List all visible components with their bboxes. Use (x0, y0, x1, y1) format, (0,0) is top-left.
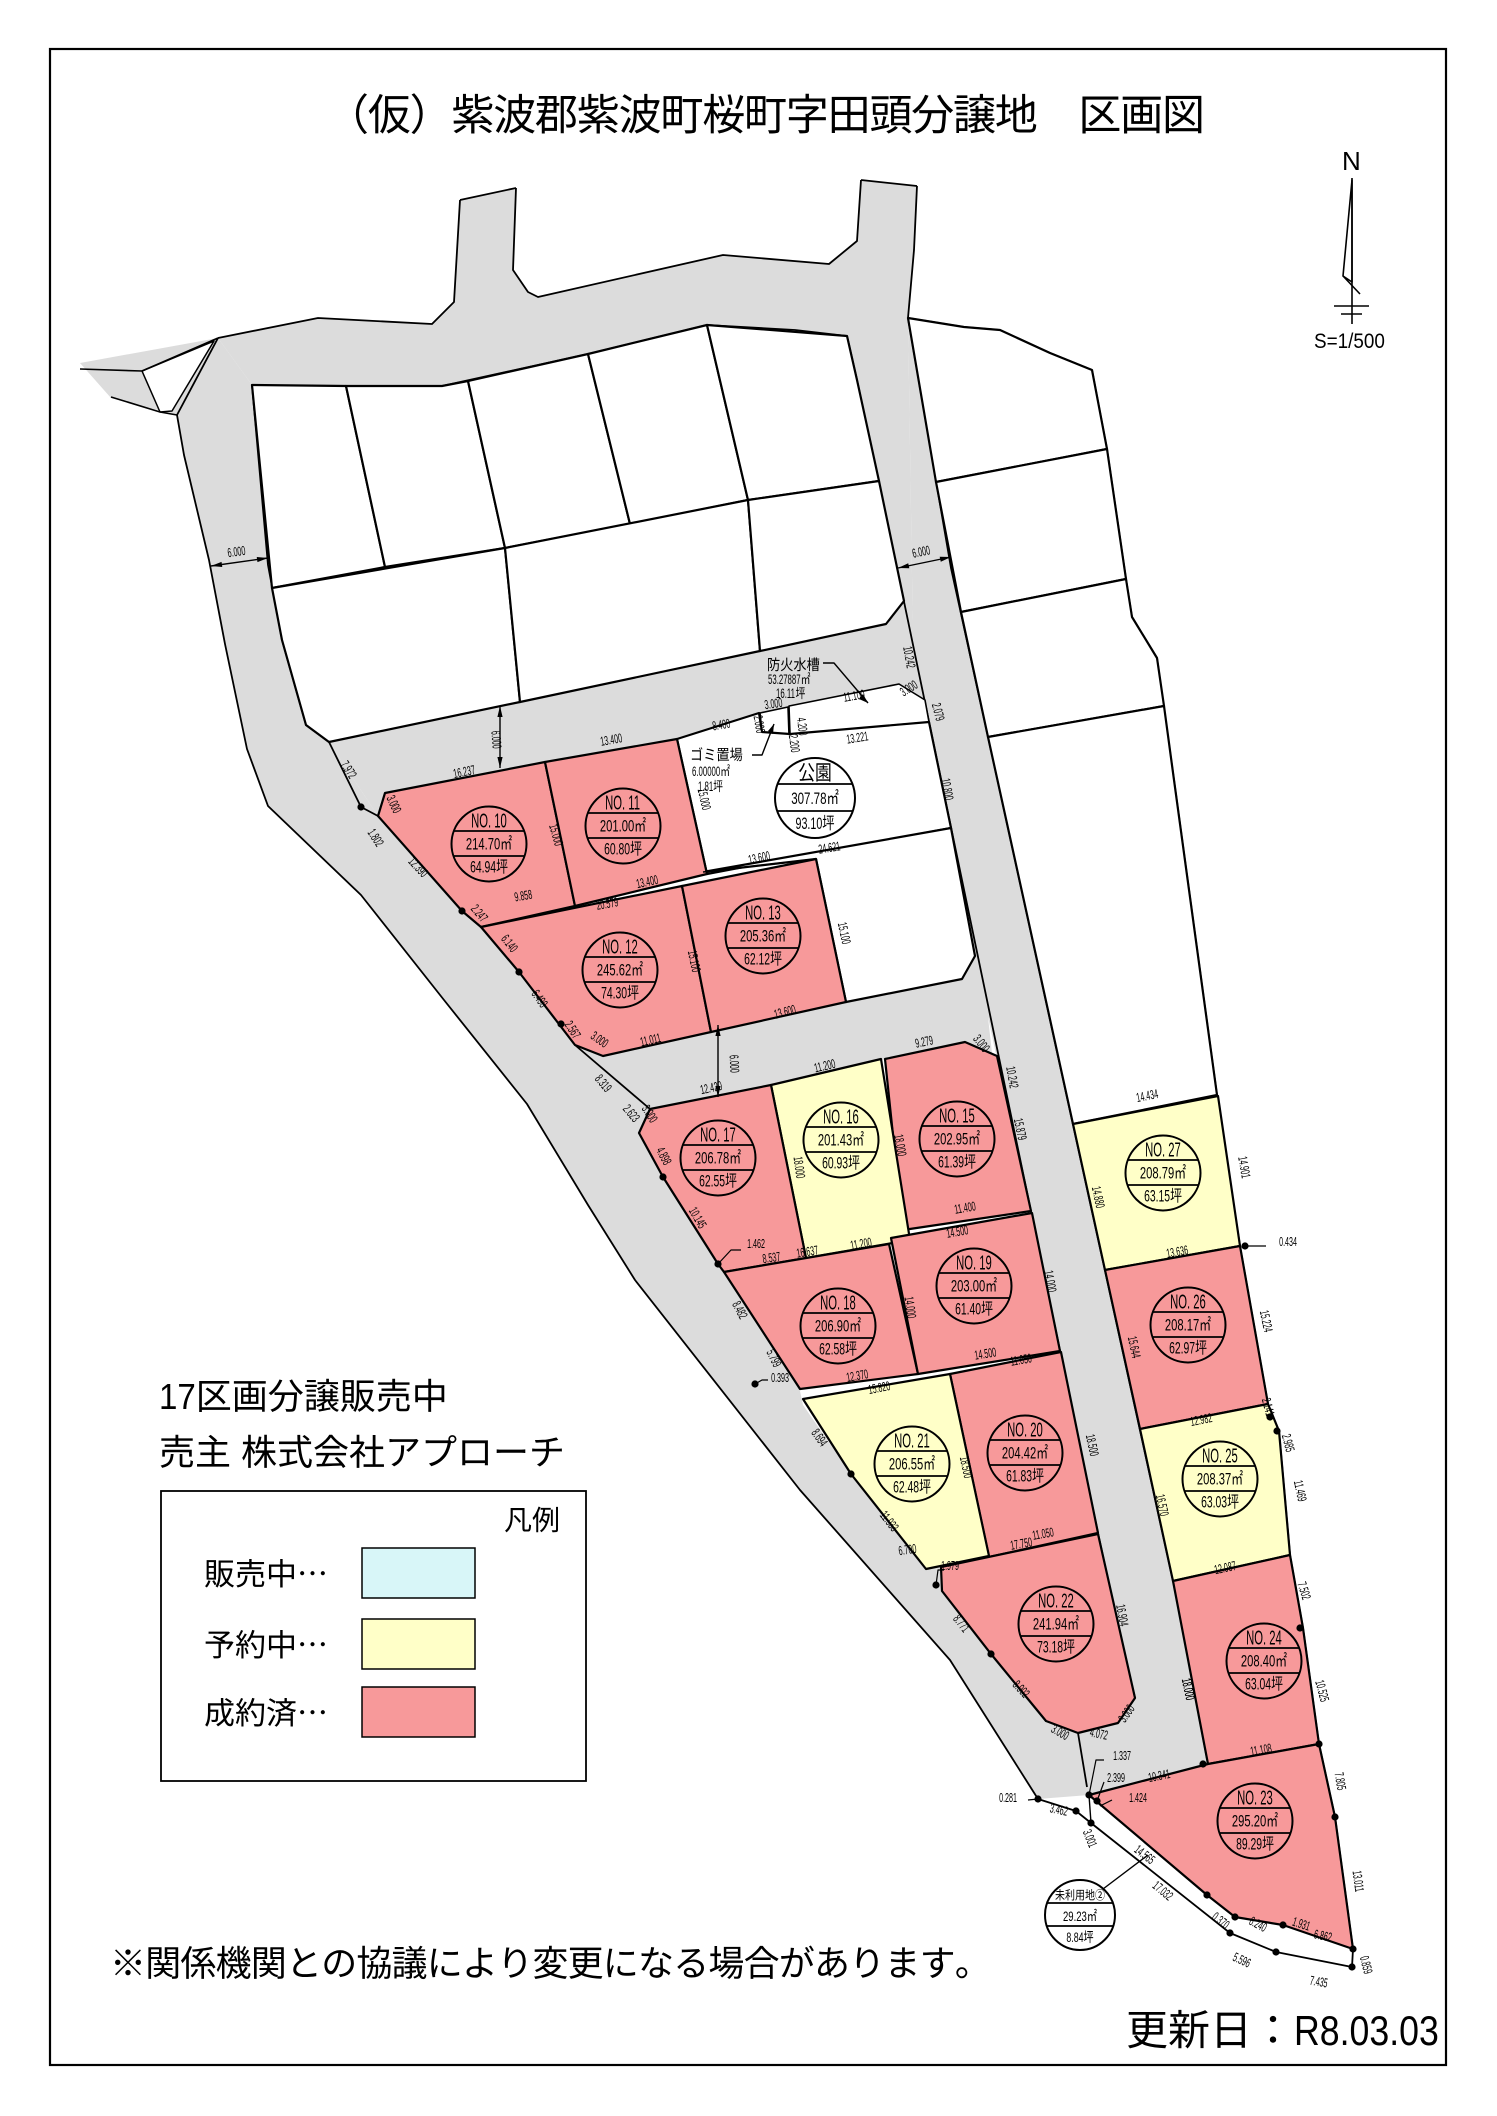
svg-text:NO. 25: NO. 25 (1202, 1444, 1238, 1468)
svg-text:208.37: 208.37 (1197, 1469, 1231, 1488)
svg-text:NO. 16: NO. 16 (823, 1105, 859, 1129)
svg-text:NO. 23: NO. 23 (1237, 1786, 1273, 1810)
svg-text:17: 17 (159, 1378, 196, 1418)
svg-text:307.78: 307.78 (791, 790, 826, 809)
svg-text:208.79: 208.79 (1140, 1163, 1174, 1182)
svg-text:NO. 19: NO. 19 (956, 1251, 992, 1275)
svg-text:62.12: 62.12 (744, 950, 770, 968)
svg-text:1.337: 1.337 (1113, 1750, 1131, 1764)
svg-text:204.42: 204.42 (1002, 1443, 1036, 1462)
svg-text:73.18: 73.18 (1037, 1638, 1063, 1656)
svg-text:NO. 20: NO. 20 (1007, 1418, 1043, 1442)
svg-text:74.30: 74.30 (601, 984, 627, 1002)
svg-text:6.000: 6.000 (227, 545, 247, 561)
svg-text:6.00000: 6.00000 (692, 765, 720, 780)
svg-text:62.58: 62.58 (819, 1340, 845, 1358)
svg-text:62.55: 62.55 (699, 1172, 725, 1190)
svg-text:NO. 13: NO. 13 (745, 901, 781, 925)
svg-text:S=1/500: S=1/500 (1314, 330, 1385, 353)
svg-text:62.48: 62.48 (893, 1478, 919, 1496)
svg-text:NO. 27: NO. 27 (1145, 1138, 1181, 1162)
svg-text:245.62: 245.62 (597, 960, 631, 979)
svg-text:NO. 24: NO. 24 (1246, 1626, 1282, 1650)
svg-text:201.00: 201.00 (600, 816, 634, 835)
svg-text:53.27887: 53.27887 (768, 673, 801, 688)
svg-text:205.36: 205.36 (740, 926, 774, 945)
svg-text:NO. 12: NO. 12 (602, 935, 638, 959)
svg-text:1.462: 1.462 (747, 1238, 765, 1252)
svg-text:6.700: 6.700 (898, 1543, 918, 1559)
svg-text:64.94: 64.94 (470, 858, 496, 876)
svg-text:206.90: 206.90 (815, 1316, 849, 1335)
svg-text:29.23: 29.23 (1063, 1908, 1087, 1924)
svg-text:NO. 18: NO. 18 (820, 1291, 856, 1315)
svg-text:63.04: 63.04 (1245, 1675, 1271, 1693)
svg-text:NO. 21: NO. 21 (894, 1429, 930, 1453)
svg-text:206.78: 206.78 (695, 1148, 729, 1167)
svg-text:0.434: 0.434 (1279, 1236, 1297, 1250)
svg-text:89.29: 89.29 (1236, 1835, 1262, 1853)
svg-text:R8.03.03: R8.03.03 (1294, 2008, 1439, 2054)
svg-text:61.83: 61.83 (1006, 1467, 1032, 1485)
svg-text:241.94: 241.94 (1033, 1614, 1067, 1633)
svg-text:NO. 17: NO. 17 (700, 1123, 736, 1147)
svg-text:208.17: 208.17 (1165, 1315, 1199, 1334)
svg-text:202.95: 202.95 (934, 1129, 968, 1148)
svg-text:62.97: 62.97 (1169, 1339, 1195, 1357)
svg-text:61.39: 61.39 (938, 1153, 964, 1171)
svg-text:NO. 22: NO. 22 (1038, 1589, 1074, 1613)
svg-text:203.00: 203.00 (951, 1276, 985, 1295)
svg-text:93.10: 93.10 (796, 815, 823, 834)
svg-text:2.399: 2.399 (1107, 1772, 1125, 1786)
svg-text:295.20: 295.20 (1232, 1811, 1266, 1830)
svg-text:8.537: 8.537 (762, 1251, 782, 1267)
svg-text:206.55: 206.55 (889, 1454, 923, 1473)
svg-text:208.40: 208.40 (1241, 1651, 1275, 1670)
svg-text:63.15: 63.15 (1144, 1187, 1170, 1205)
svg-text:0.393: 0.393 (771, 1372, 789, 1386)
svg-text:201.43: 201.43 (818, 1130, 852, 1149)
svg-text:60.93: 60.93 (822, 1154, 848, 1172)
svg-text:NO. 26: NO. 26 (1170, 1290, 1206, 1314)
svg-text:N: N (1342, 146, 1361, 176)
svg-text:6.000: 6.000 (488, 730, 503, 749)
svg-text:NO. 11: NO. 11 (605, 791, 640, 815)
svg-text:4.200: 4.200 (793, 717, 809, 737)
svg-text:3.000: 3.000 (764, 697, 784, 713)
svg-text:2.200: 2.200 (785, 734, 801, 754)
svg-text:6.000: 6.000 (726, 1055, 741, 1074)
svg-text:NO. 10: NO. 10 (471, 809, 507, 833)
svg-text:214.70: 214.70 (466, 834, 500, 853)
svg-text:NO. 15: NO. 15 (939, 1104, 975, 1128)
svg-text:1.424: 1.424 (1129, 1792, 1147, 1806)
svg-text:8.84: 8.84 (1066, 1930, 1084, 1946)
svg-text:0.281: 0.281 (999, 1792, 1017, 1806)
svg-text:60.80: 60.80 (604, 840, 630, 858)
svg-text:1.979: 1.979 (941, 1560, 959, 1574)
svg-text:63.03: 63.03 (1201, 1493, 1227, 1511)
svg-text:61.40: 61.40 (955, 1300, 981, 1318)
